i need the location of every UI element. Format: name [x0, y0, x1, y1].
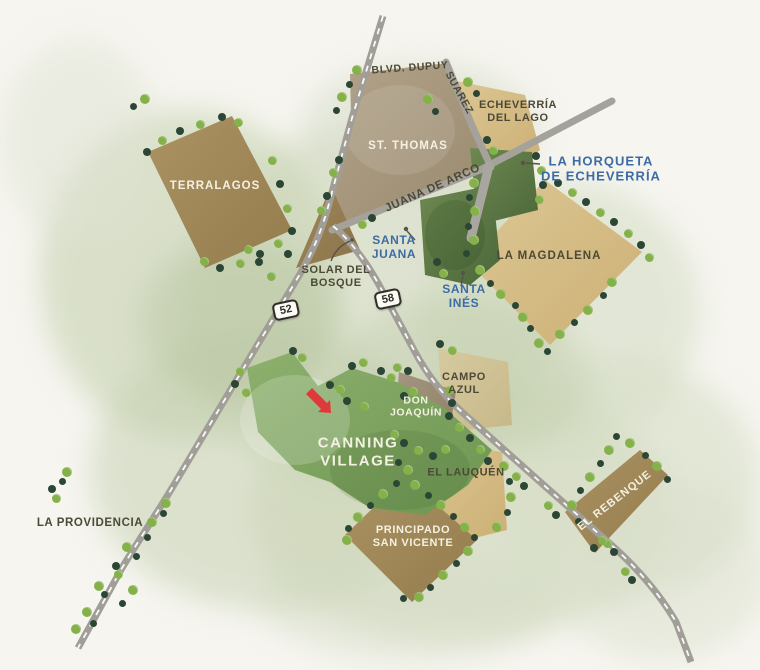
label-line: SAN VICENTE [373, 537, 454, 549]
label-line: DEL LAGO [487, 112, 548, 124]
region-label-campo-azul: CAMPO AZUL [442, 371, 486, 397]
region-label-la-magdalena: LA MAGDALENA [497, 250, 602, 264]
region-label-principado-san-vicente: PRINCIPADO SAN VICENTE [373, 524, 454, 550]
region-label-la-providencia: LA PROVIDENCIA [37, 517, 143, 531]
road-label-juana-de-arco: JUANA DE ARCO [383, 162, 482, 216]
label-line: SANTA [442, 282, 485, 296]
label-line: JOAQUÍN [390, 407, 442, 419]
label-line: INÉS [449, 296, 479, 310]
region-label-terralagos: TERRALAGOS [170, 180, 261, 194]
watercolor-neighborhood-map: BLVD. DUPUY SUAREZ ST. THOMAS TERRALAGOS… [0, 0, 760, 670]
road-label-blvd-dupuy: BLVD. DUPUY [371, 59, 449, 77]
region-label-el-rebenque: EL REBENQUE [575, 468, 654, 534]
label-line: DON [403, 395, 428, 407]
label-line: CANNING [318, 434, 399, 451]
region-label-la-horqueta: LA HORQUETA DE ECHEVERRÍA [541, 154, 661, 185]
labels-layer: BLVD. DUPUY SUAREZ ST. THOMAS TERRALAGOS… [0, 0, 760, 670]
route-52-shield: 52 [271, 298, 300, 321]
region-label-canning-village: CANNING VILLAGE [318, 434, 399, 469]
region-label-santa-ines: SANTA INÉS [442, 282, 485, 310]
region-label-don-joaquin: DON JOAQUÍN [390, 395, 442, 420]
region-label-santa-juana: SANTA JUANA [372, 233, 416, 261]
label-line: ECHEVERRÍA [479, 99, 557, 111]
label-line: PRINCIPADO [376, 524, 450, 536]
label-line: BOSQUE [310, 277, 361, 289]
label-line: VILLAGE [320, 452, 396, 469]
label-line: JUANA [372, 247, 416, 261]
label-line: LA HORQUETA [549, 154, 654, 169]
label-line: SANTA [372, 233, 415, 247]
label-line: SOLAR DEL [302, 264, 371, 276]
region-label-st-thomas: ST. THOMAS [368, 140, 448, 154]
label-line: DE ECHEVERRÍA [541, 169, 661, 184]
region-label-el-lauquen: EL LAUQUÉN [427, 467, 504, 480]
road-label-suarez: SUAREZ [442, 70, 476, 117]
label-line: AZUL [448, 384, 480, 396]
region-label-echeverria-del-lago: ECHEVERRÍA DEL LAGO [479, 99, 557, 125]
label-line: CAMPO [442, 371, 486, 383]
region-label-solar-del-bosque: SOLAR DEL BOSQUE [302, 264, 371, 290]
route-58-shield: 58 [373, 287, 402, 310]
